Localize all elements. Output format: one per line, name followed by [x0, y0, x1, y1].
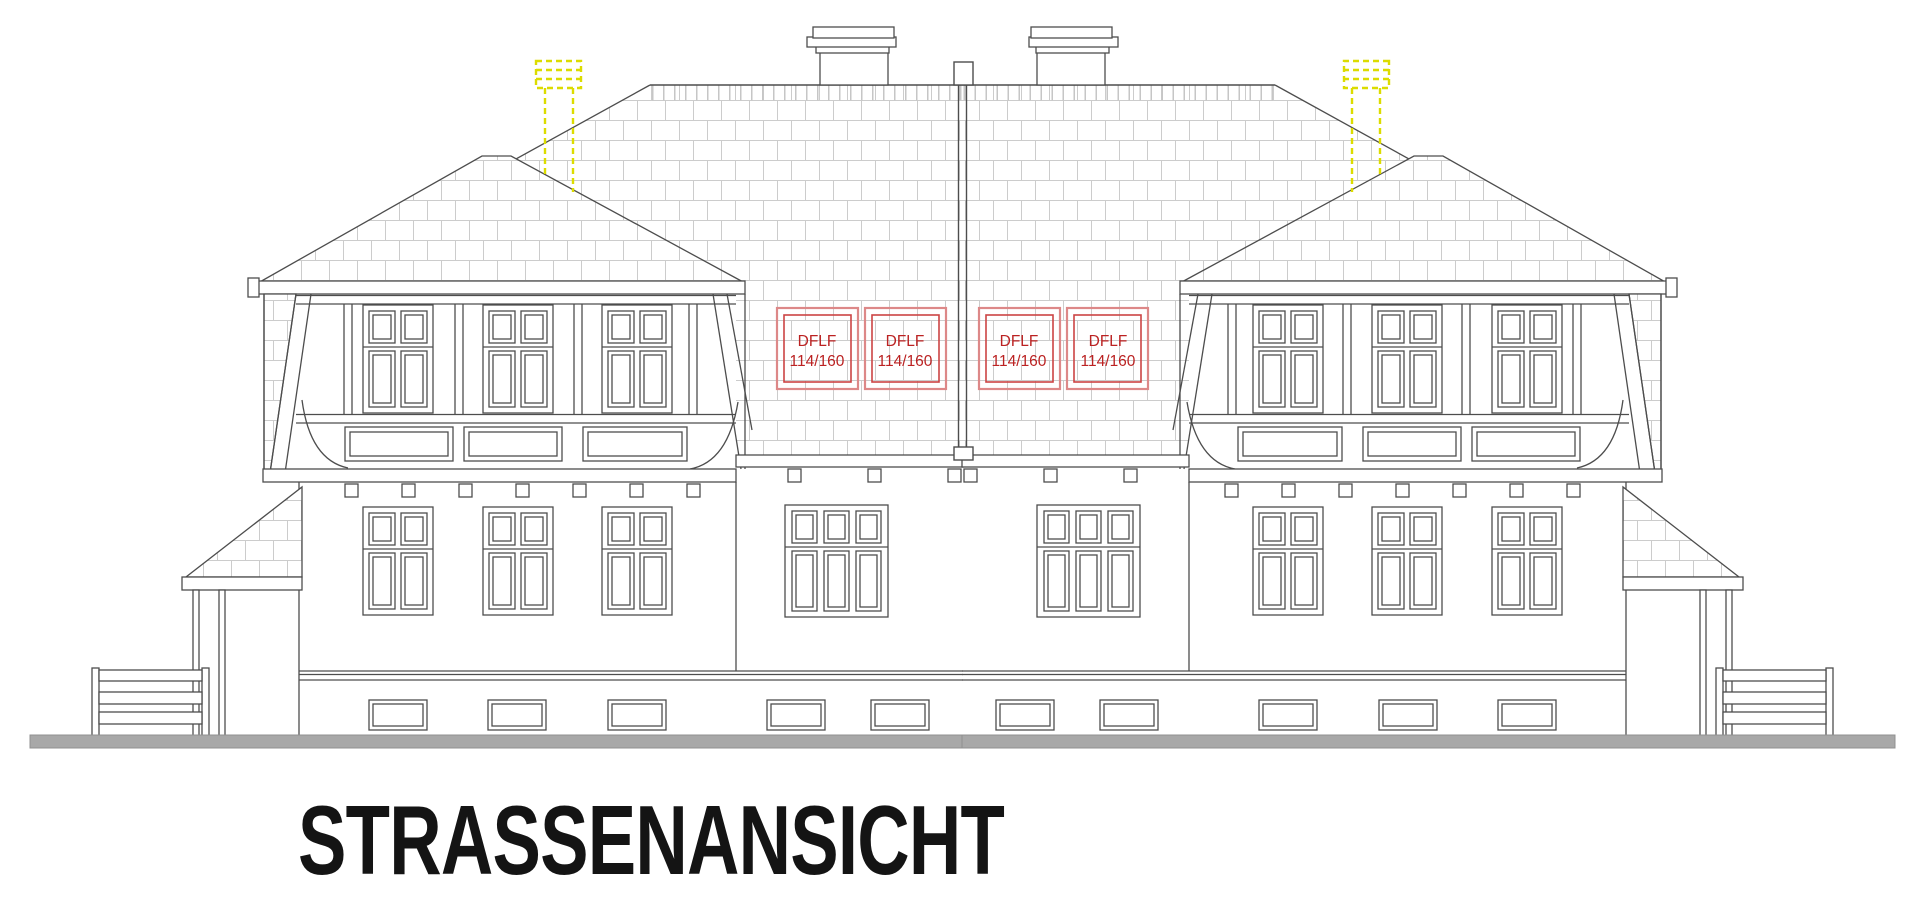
- party-wall-foot-block: [954, 447, 973, 460]
- page-canvas: DFLF 114/160 DFLF 114/160 DFLF 114/160 D…: [0, 0, 1920, 919]
- roof-window-label-4-line-1: DFLF: [1089, 333, 1128, 350]
- party-wall-ridge-stub: [954, 62, 973, 85]
- roof-window-label-1-line-1: DFLF: [798, 333, 837, 350]
- building-left-half: [30, 27, 963, 748]
- roof-window-label-2-line-2: 114/160: [878, 353, 933, 370]
- roof-window-label-2-line-1: DFLF: [886, 333, 925, 350]
- roof-window-label-3-line-2: 114/160: [992, 353, 1047, 370]
- building-right-half: [962, 27, 1895, 748]
- roof-window-label-3-line-1: DFLF: [1000, 333, 1039, 350]
- roof-window-label-1-line-2: 114/160: [790, 353, 845, 370]
- drawing-title: STRASSENANSICHT: [298, 784, 1004, 897]
- street-elevation-drawing: DFLF 114/160 DFLF 114/160 DFLF 114/160 D…: [0, 0, 1920, 919]
- roof-window-label-4-line-2: 114/160: [1081, 353, 1136, 370]
